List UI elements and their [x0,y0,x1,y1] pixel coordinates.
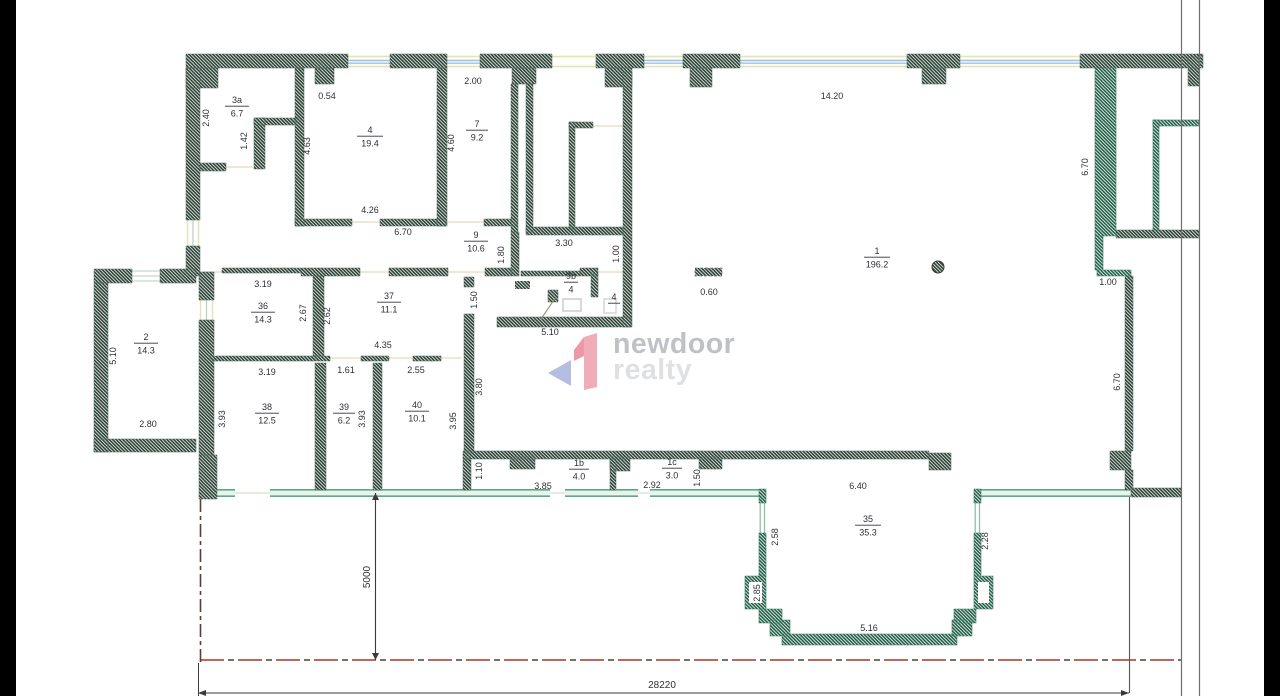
svg-text:1.50: 1.50 [469,291,479,309]
svg-text:6.70: 6.70 [1112,373,1122,391]
svg-text:3.85: 3.85 [534,481,552,491]
svg-text:1.80: 1.80 [496,246,506,264]
svg-text:10.1: 10.1 [408,414,426,424]
svg-text:35: 35 [863,514,873,524]
svg-text:11.1: 11.1 [381,305,398,315]
svg-text:1c: 1c [667,457,677,467]
svg-text:4.26: 4.26 [361,205,379,215]
svg-text:2.67: 2.67 [298,304,308,322]
svg-text:37: 37 [384,291,394,301]
svg-text:4.0: 4.0 [573,472,586,482]
svg-text:4.35: 4.35 [374,340,392,350]
svg-text:7: 7 [474,119,479,129]
svg-text:36: 36 [258,301,268,311]
svg-text:28220: 28220 [648,680,676,691]
svg-text:38: 38 [262,402,272,412]
svg-text:2.62: 2.62 [322,307,332,325]
svg-text:3.0: 3.0 [666,471,679,481]
svg-text:1b: 1b [574,458,584,468]
svg-text:39: 39 [339,402,349,412]
svg-text:14.3: 14.3 [137,346,155,356]
svg-text:40: 40 [412,400,422,410]
svg-text:3.93: 3.93 [217,410,227,428]
svg-text:0.60: 0.60 [700,287,718,297]
svg-text:35.3: 35.3 [859,528,877,538]
svg-text:3.30: 3.30 [555,238,573,248]
svg-text:6.2: 6.2 [338,416,351,426]
svg-text:3.95: 3.95 [448,412,458,430]
svg-text:4.60: 4.60 [446,134,456,152]
svg-text:1: 1 [874,246,879,256]
svg-text:5.16: 5.16 [860,623,878,633]
svg-text:5.10: 5.10 [541,327,559,337]
svg-text:2.58: 2.58 [770,528,780,546]
svg-text:2.85: 2.85 [752,584,762,602]
svg-text:4: 4 [611,292,616,302]
svg-text:3.19: 3.19 [254,279,272,289]
svg-text:6.7: 6.7 [231,109,244,119]
svg-text:1.61: 1.61 [337,365,355,375]
svg-text:10.6: 10.6 [467,244,485,254]
svg-text:19.4: 19.4 [361,139,379,149]
svg-text:3.93: 3.93 [357,410,367,428]
svg-text:6.70: 6.70 [394,227,412,237]
svg-text:1.00: 1.00 [611,245,621,263]
svg-text:2.00: 2.00 [464,76,482,86]
svg-text:1.42: 1.42 [239,132,249,150]
svg-text:9: 9 [473,230,478,240]
svg-text:12.5: 12.5 [258,416,276,426]
svg-text:3.19: 3.19 [258,367,276,377]
svg-text:9.2: 9.2 [471,133,484,143]
svg-text:4: 4 [568,285,573,295]
svg-text:6.40: 6.40 [849,481,867,491]
svg-text:2.80: 2.80 [139,419,157,429]
svg-text:5000: 5000 [362,565,373,588]
svg-text:3a: 3a [232,95,242,105]
svg-text:4: 4 [367,125,372,135]
svg-text:1.00: 1.00 [1099,277,1117,287]
svg-text:5.10: 5.10 [108,347,118,365]
svg-text:6.70: 6.70 [1080,158,1090,176]
svg-text:2.40: 2.40 [201,109,211,127]
svg-text:2.28: 2.28 [980,532,990,550]
svg-text:4.63: 4.63 [302,137,312,155]
svg-text:2.92: 2.92 [643,480,661,490]
svg-text:9b: 9b [566,271,576,281]
svg-text:1.50: 1.50 [692,469,702,487]
svg-text:3.80: 3.80 [474,378,484,396]
svg-text:0.54: 0.54 [318,91,336,101]
svg-text:14.3: 14.3 [254,315,272,325]
svg-text:1.10: 1.10 [474,462,484,480]
svg-text:2: 2 [143,332,148,342]
svg-text:realty: realty [613,354,692,386]
svg-text:14.20: 14.20 [821,91,844,101]
svg-text:2.55: 2.55 [407,365,425,375]
svg-text:196.2: 196.2 [866,260,889,270]
